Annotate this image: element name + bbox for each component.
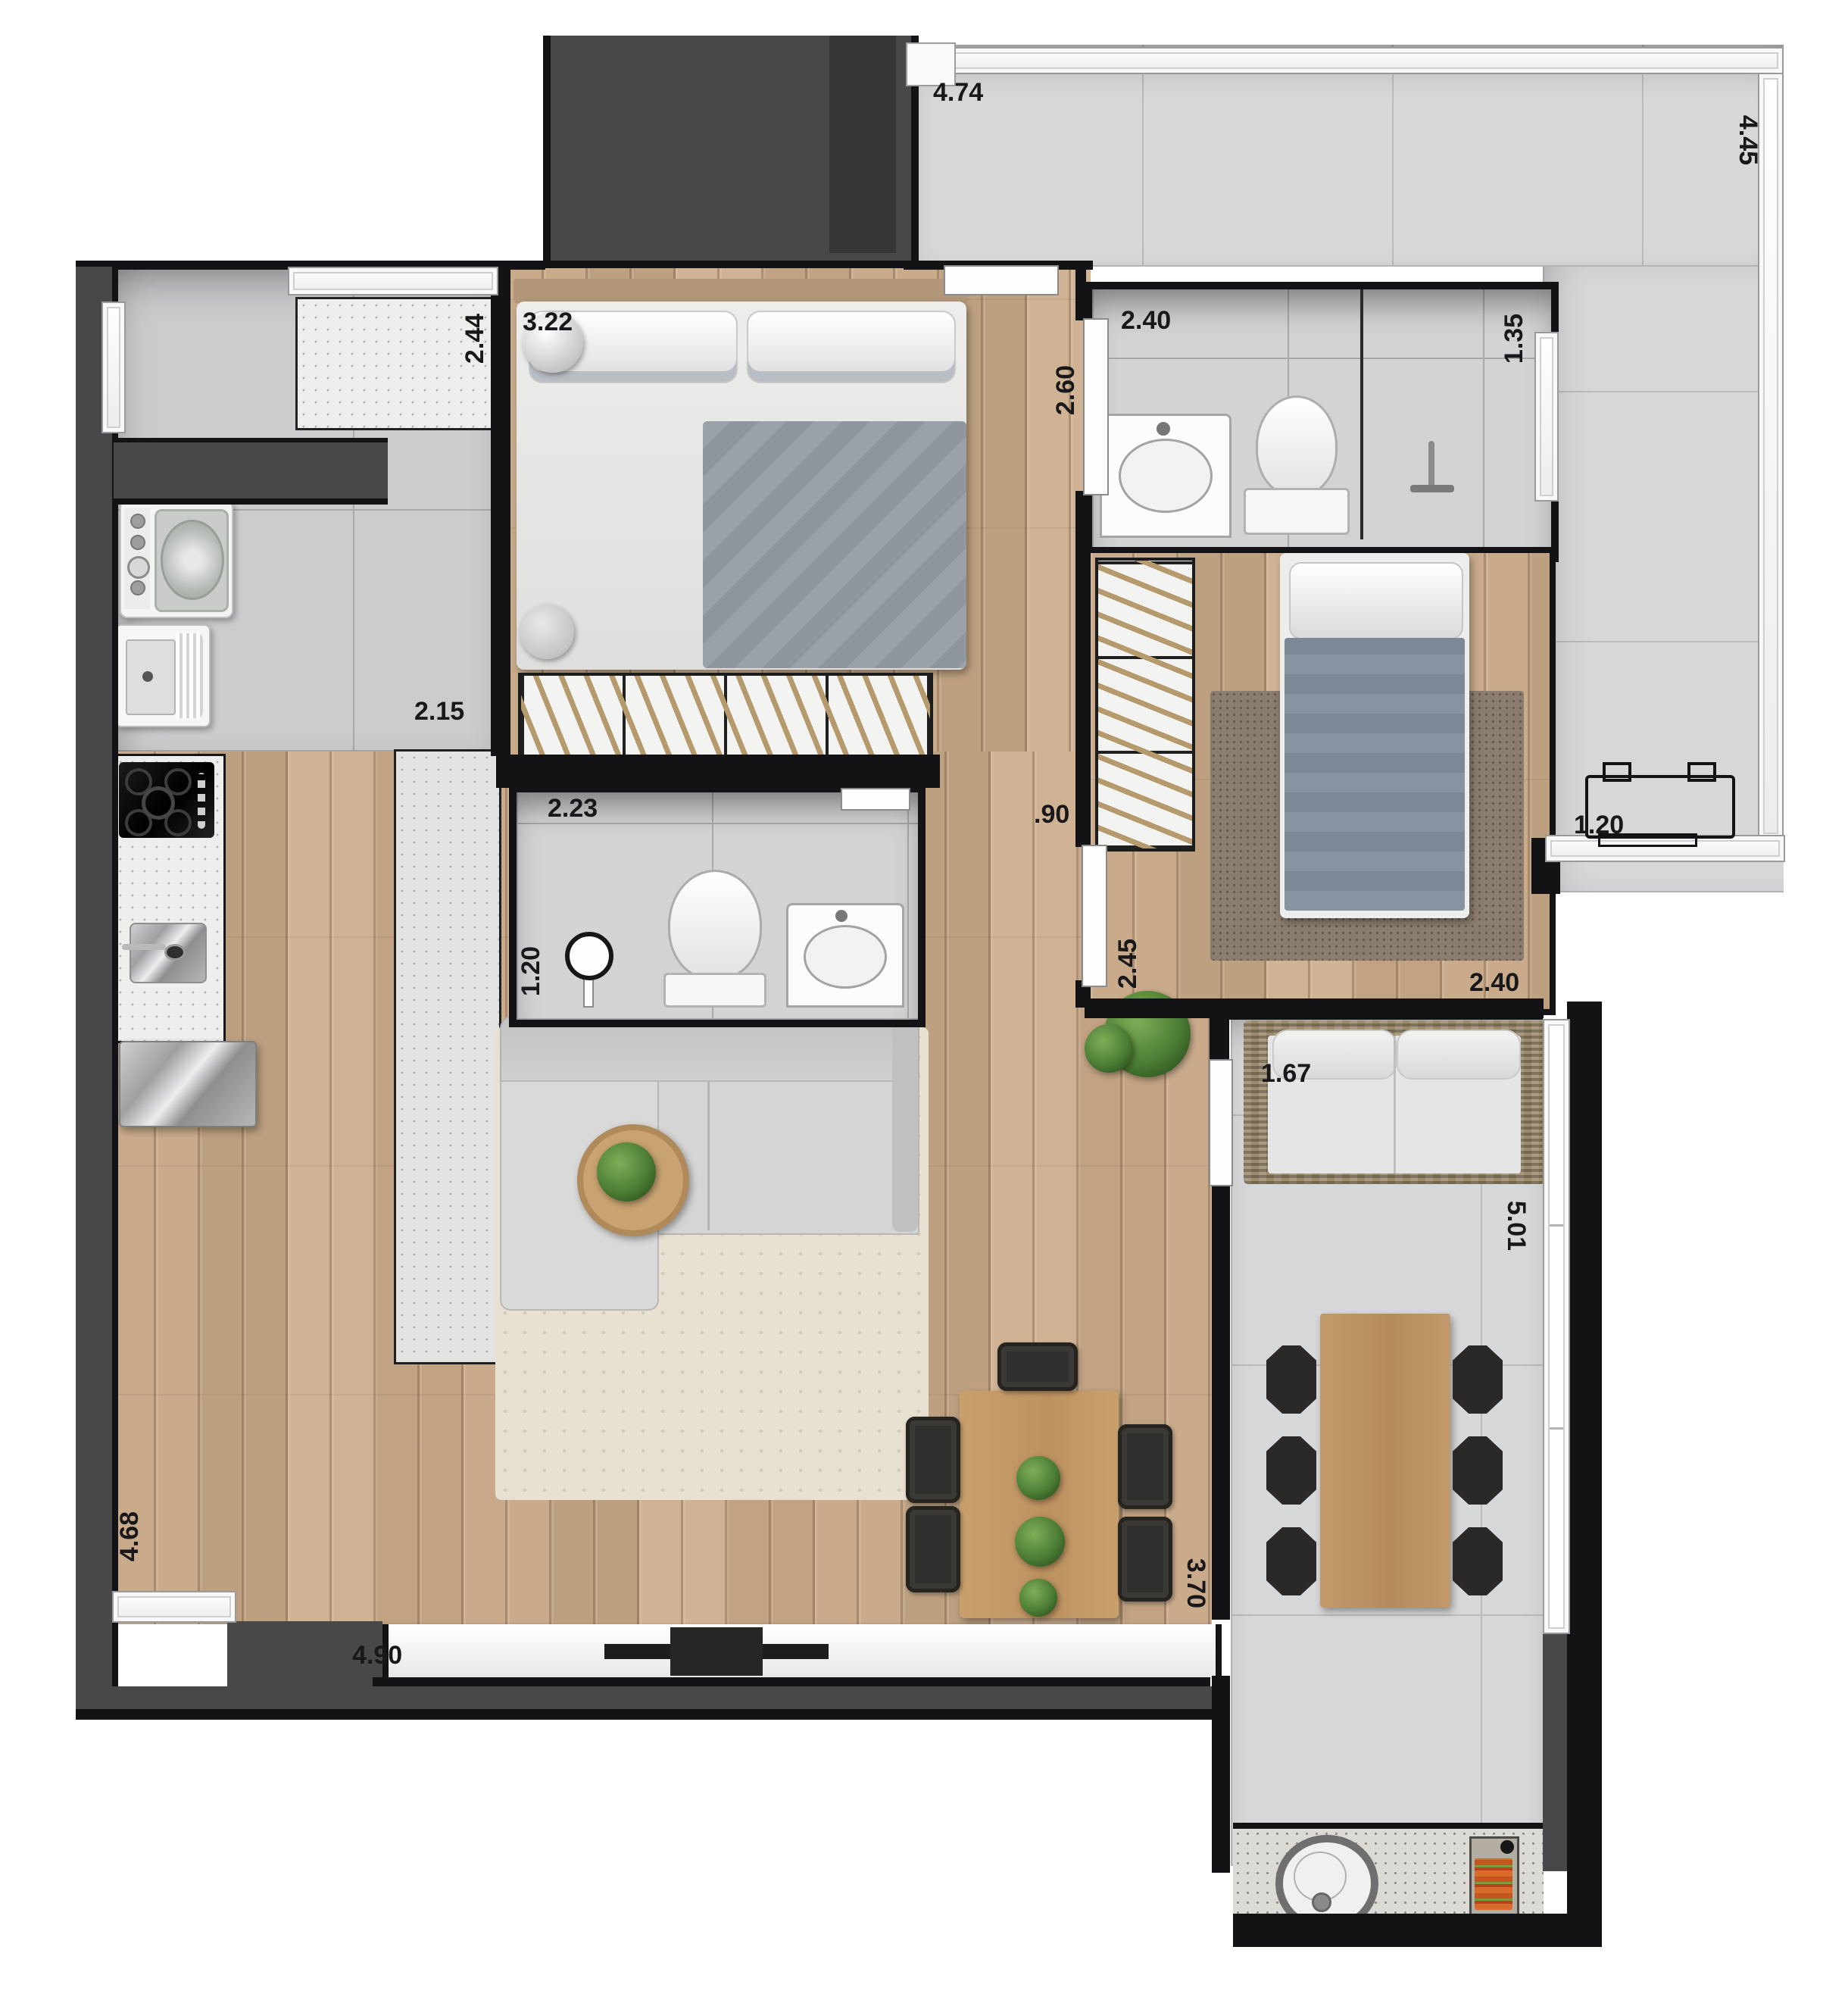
cushion-seam xyxy=(1394,1036,1396,1173)
cooktop xyxy=(119,762,214,838)
shower-rod xyxy=(1428,441,1434,489)
toilet-bowl xyxy=(668,870,762,980)
dim-balcony-length: 5.01 xyxy=(1502,1201,1529,1251)
shower-head xyxy=(565,932,613,980)
toilet-bowl xyxy=(1256,395,1338,497)
bed2-duvet xyxy=(1285,638,1465,911)
grill-skewers xyxy=(1475,1858,1512,1910)
dim-bedroom2-depth: 2.45 xyxy=(1115,939,1142,989)
outdoor-chair xyxy=(1266,1345,1316,1414)
bathroom2-vanity xyxy=(786,903,904,1008)
single-bed xyxy=(1280,553,1469,918)
bathroom-vanity xyxy=(1100,414,1231,538)
washer-knob xyxy=(130,514,145,529)
wall-bottom-outer xyxy=(76,1709,1212,1720)
master-headboard xyxy=(514,279,968,303)
dim-kitchen-width: 2.15 xyxy=(414,698,464,726)
dining-chair xyxy=(1118,1424,1172,1509)
wall xyxy=(1210,1020,1229,1062)
left-bottom-window xyxy=(112,1591,236,1623)
washer-drum-circle xyxy=(161,520,224,600)
pillow xyxy=(1289,562,1463,639)
service-shaft xyxy=(543,36,919,268)
suite-bathroom-door xyxy=(1083,318,1109,495)
outdoor-sofa xyxy=(1244,1020,1545,1184)
pillow xyxy=(747,311,956,383)
fridge xyxy=(119,1041,257,1127)
outdoor-table xyxy=(1320,1314,1450,1608)
laundry-wall-band xyxy=(114,438,388,505)
wall-bottom-band xyxy=(76,1686,1212,1709)
floor-plan-page: { "plan": { "dimensions": [ {"area": "te… xyxy=(0,0,1848,2000)
bbq-grill xyxy=(1469,1836,1519,1917)
wall xyxy=(491,267,510,756)
outdoor-chair xyxy=(1453,1345,1503,1414)
washing-machine xyxy=(120,500,233,618)
wall-under-window xyxy=(1543,1631,1567,1871)
toilet-tank xyxy=(1244,488,1350,535)
wall xyxy=(1212,1676,1230,1873)
dining-chair xyxy=(906,1417,960,1503)
sofa-cushion-line xyxy=(707,1082,710,1230)
shower-glass-divider xyxy=(1360,289,1363,539)
dining-chair xyxy=(997,1342,1078,1391)
bed-blanket xyxy=(703,421,966,668)
dim-dining-depth: 3.70 xyxy=(1182,1558,1209,1608)
kitchen-sink xyxy=(130,923,207,983)
sofa-arm xyxy=(892,1015,918,1232)
wall-hall xyxy=(1075,491,1086,847)
sink-faucet xyxy=(1312,1892,1331,1912)
toilet xyxy=(1244,395,1347,535)
dining-plant xyxy=(1015,1517,1065,1567)
bedroom2-wardrobe-hangers xyxy=(1095,558,1195,852)
island-counter xyxy=(394,749,501,1364)
service-shaft-dark xyxy=(829,36,896,253)
dim-bathroom2-depth: 1.20 xyxy=(518,946,545,996)
washer-knob xyxy=(130,580,145,595)
terrace-window-right xyxy=(1758,73,1784,839)
tub-drain xyxy=(142,671,153,682)
terrace-bench-tab xyxy=(1687,762,1716,782)
balcony-window-right xyxy=(1543,1019,1570,1634)
suite-bathroom-window xyxy=(1534,332,1559,502)
terrace-floor-top xyxy=(892,45,1784,267)
outdoor-back-cushion xyxy=(1397,1030,1521,1080)
kitchen-counter-column xyxy=(112,754,226,1043)
wall-bottom-line xyxy=(373,1677,1210,1686)
wall xyxy=(496,755,940,788)
dim-suite-bath-depth: 1.35 xyxy=(1501,314,1528,364)
coffee-table-plant xyxy=(597,1142,656,1202)
dim-balcony-sofa: 1.67 xyxy=(1261,1061,1311,1088)
bedroom2 xyxy=(1085,547,1556,1015)
dim-living-depth: 4.68 xyxy=(117,1511,144,1561)
bedside-pouf xyxy=(520,605,574,659)
kitchen-window-top xyxy=(288,267,498,295)
dim-hallway-length: 2.60 xyxy=(1053,365,1080,415)
washer-knob xyxy=(127,556,150,579)
wall-balcony-bottom xyxy=(1233,1914,1602,1947)
outdoor-chair xyxy=(1453,1527,1503,1595)
faucet xyxy=(835,910,848,922)
entry-door xyxy=(944,265,1059,295)
drain xyxy=(164,944,186,961)
balcony-tv-strip xyxy=(382,1624,1222,1679)
bedroom2-door xyxy=(1082,845,1107,987)
dim-suite-bath-width: 2.40 xyxy=(1121,308,1171,335)
dining-chair xyxy=(1118,1517,1172,1602)
kitchen-window-left xyxy=(101,302,126,433)
shower-head xyxy=(1410,485,1454,492)
wall xyxy=(1210,1002,1543,1020)
dim-terrace-depth: 4.45 xyxy=(1734,115,1761,165)
sofa xyxy=(500,1015,918,1308)
dim-terrace-width: 4.74 xyxy=(933,80,983,107)
outdoor-chair xyxy=(1453,1436,1503,1505)
master-wardrobe-hangers xyxy=(518,673,933,761)
terrace-bench-tab xyxy=(1603,762,1631,782)
dim-kitchen-counter: 2.44 xyxy=(462,314,489,364)
dim-hallway-width: .90 xyxy=(1034,802,1069,829)
dim-terrace-bench: 1.20 xyxy=(1574,812,1624,839)
tv-console xyxy=(670,1627,763,1676)
vanity-sink xyxy=(1119,439,1213,513)
wall-hall xyxy=(1075,261,1086,320)
dining-plant xyxy=(1016,1456,1060,1500)
dim-living-width: 4.90 xyxy=(352,1642,402,1670)
dim-bathroom2-width: 2.23 xyxy=(548,795,598,823)
outdoor-chair xyxy=(1266,1527,1316,1595)
burner-center xyxy=(142,786,175,820)
wall xyxy=(1212,1182,1230,1620)
dining-plant xyxy=(1019,1579,1057,1617)
tub-ribs xyxy=(176,633,203,718)
dim-bedroom2-width: 2.40 xyxy=(1469,970,1519,997)
laundry-tub xyxy=(115,624,211,727)
balcony-counter xyxy=(1233,1823,1544,1921)
faucet xyxy=(122,944,166,950)
dim-master-bedroom: 3.22 xyxy=(523,309,573,336)
wall-left-lower xyxy=(76,752,118,1706)
washer-knob xyxy=(130,535,145,550)
faucet xyxy=(1157,422,1170,436)
grill-knob xyxy=(1500,1840,1514,1854)
double-bed xyxy=(517,302,966,670)
outdoor-chair xyxy=(1266,1436,1316,1505)
vanity-sink xyxy=(804,925,887,989)
potted-plant-large-leaf xyxy=(1085,1024,1133,1073)
bathroom2-door xyxy=(841,788,910,811)
balcony-door xyxy=(1209,1059,1233,1186)
toilet-tank xyxy=(663,973,766,1008)
wall-balcony-right xyxy=(1567,1002,1602,1947)
terrace-window-top xyxy=(939,47,1784,74)
dining-chair xyxy=(906,1506,960,1592)
cooktop-knobs xyxy=(198,773,205,829)
